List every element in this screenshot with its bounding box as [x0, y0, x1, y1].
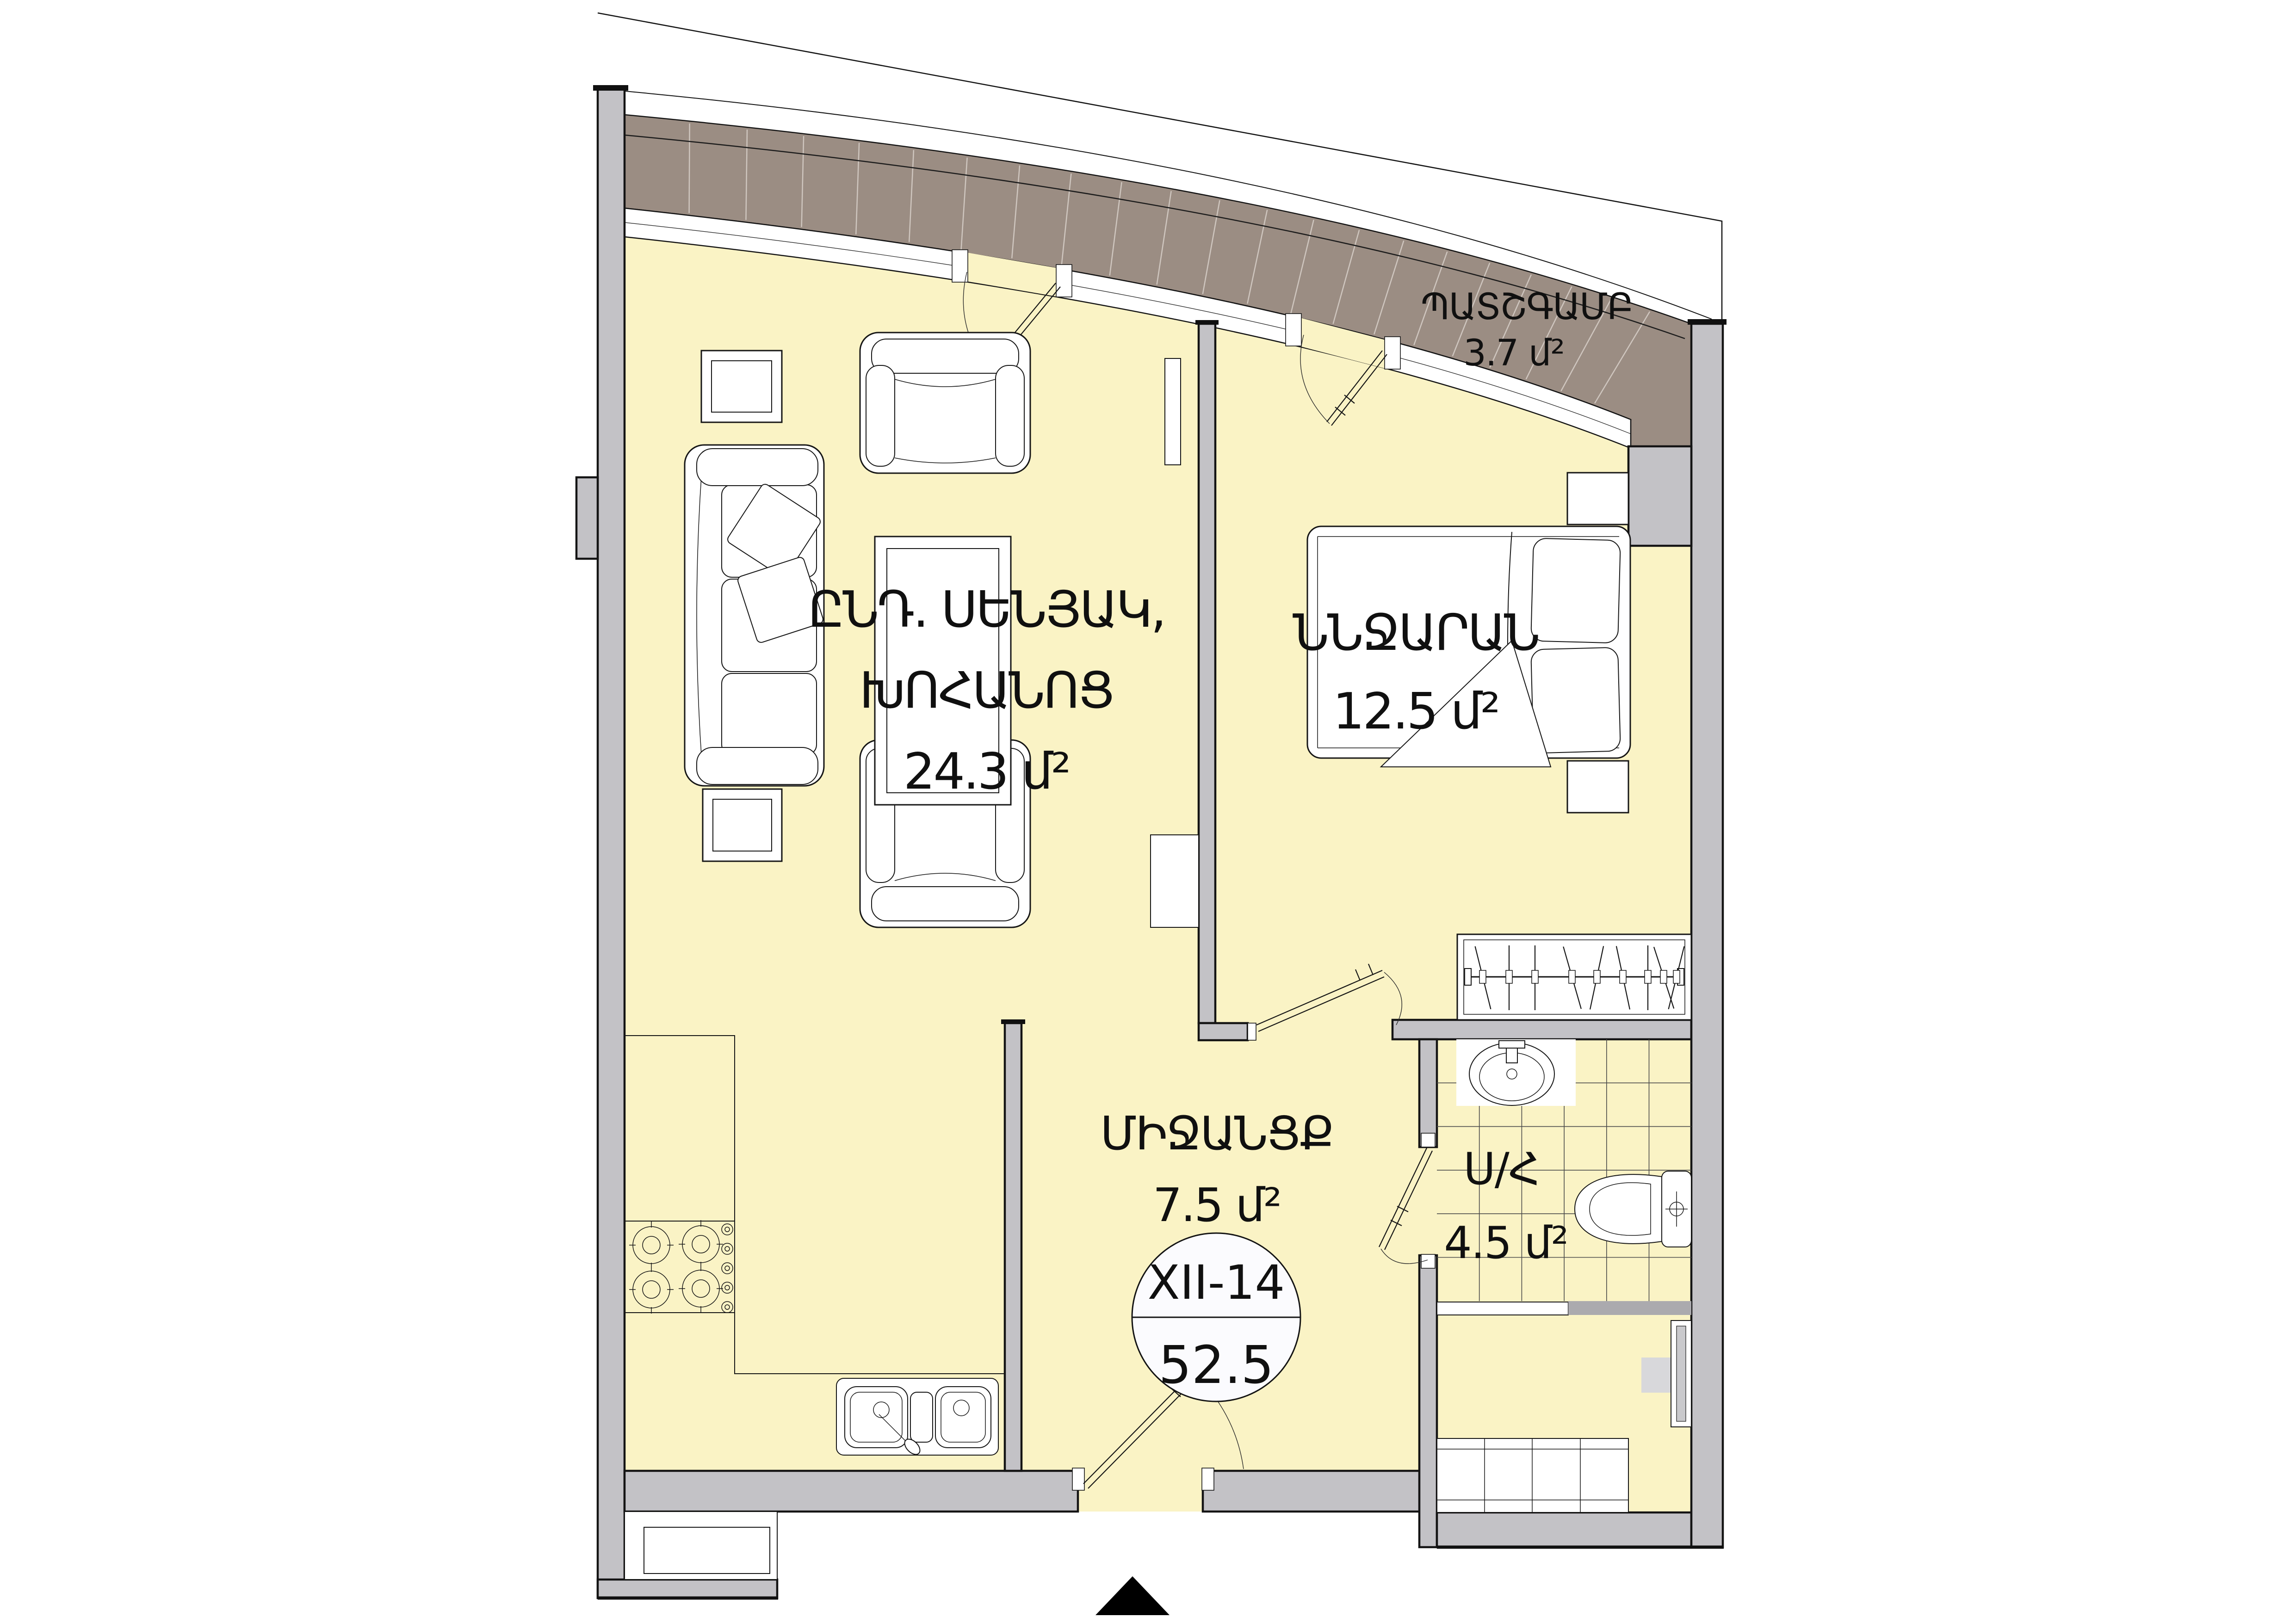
wall-hall-stub	[1199, 1023, 1248, 1040]
wall-cap	[593, 85, 628, 91]
bed-pillow-2	[1531, 648, 1621, 753]
entrance-marker-icon	[1095, 1576, 1170, 1615]
window-jamb	[1056, 265, 1072, 297]
radiator-shelf	[1165, 358, 1181, 465]
wall-bedroom-stub	[1628, 446, 1691, 546]
living-room-name-line2: ԽՈՀԱՆՈՑ	[860, 662, 1114, 720]
wall-hall-bath-upper	[1419, 1039, 1437, 1147]
side-table-2	[703, 789, 782, 861]
unit-badge: XII-14 52.5	[1132, 1233, 1300, 1401]
hallway-area: 7.5 մ²	[1153, 1178, 1281, 1232]
toilet	[1575, 1171, 1691, 1247]
bathroom-name: Ս/Հ	[1463, 1144, 1539, 1195]
wall-left-pier	[576, 477, 598, 559]
unit-badge-code: XII-14	[1148, 1255, 1285, 1310]
wall-bottom-left	[625, 1471, 1078, 1512]
floor-plan-page: ԸՆԴ. ՍԵՆՅԱԿ, ԽՈՀԱՆՈՑ 24.3 մ² ՆՆՋԱՐԱՆ 12.…	[0, 0, 2296, 1623]
wall-cap	[1688, 319, 1727, 325]
shower-screen	[1437, 1302, 1568, 1315]
entrance-niche	[625, 1512, 777, 1580]
wall-niche-band	[598, 1580, 777, 1598]
bathroom-area: 4.5 մ²	[1444, 1218, 1568, 1269]
console-shelf	[1151, 835, 1199, 927]
balcony-name: ՊԱՏՇԳԱՄԲ	[1421, 286, 1633, 328]
balcony-area: 3.7 մ²	[1463, 333, 1564, 374]
bedroom-area: 12.5 մ²	[1333, 683, 1499, 741]
wall-living-bedroom	[1199, 324, 1215, 1023]
wall-bottom-mid	[1203, 1471, 1437, 1512]
wall-bedroom-hall	[1392, 1020, 1691, 1039]
wall-cap	[1001, 1019, 1025, 1024]
wardrobe	[1457, 934, 1691, 1020]
wall-bottom-right	[1437, 1512, 1691, 1547]
nightstand-2	[1567, 761, 1628, 813]
unit-badge-total-area: 52.5	[1158, 1335, 1274, 1395]
wall-hall-bath-lower	[1419, 1255, 1437, 1547]
bedroom-name: ՆՆՋԱՐԱՆ	[1293, 604, 1539, 662]
washbasin	[1456, 1039, 1576, 1106]
wall-cap	[1195, 320, 1219, 325]
kitchen-sink	[836, 1378, 998, 1457]
living-room-name-line1: ԸՆԴ. ՍԵՆՅԱԿ,	[808, 581, 1164, 639]
bed-pillow-1	[1531, 538, 1621, 643]
storage-grid	[1437, 1438, 1628, 1512]
window-jamb	[1286, 314, 1301, 346]
living-room-area: 24.3 մ²	[904, 743, 1070, 801]
wall-kitchen-hall	[1005, 1023, 1021, 1471]
hallway-name: ՄԻՋԱՆՑՔ	[1100, 1106, 1333, 1160]
nightstand-1	[1567, 473, 1628, 525]
floor-plan-canvas: ԸՆԴ. ՍԵՆՅԱԿ, ԽՈՀԱՆՈՑ 24.3 մ² ՆՆՋԱՐԱՆ 12.…	[0, 0, 2296, 1623]
wall-right	[1691, 324, 1723, 1547]
exterior-strip	[777, 1512, 1437, 1553]
sofa	[685, 445, 824, 786]
window-jamb	[1385, 337, 1400, 369]
armchair-top	[860, 333, 1030, 473]
side-table-1	[701, 351, 782, 422]
shower-curb	[1568, 1301, 1691, 1315]
wall-left	[598, 89, 625, 1598]
